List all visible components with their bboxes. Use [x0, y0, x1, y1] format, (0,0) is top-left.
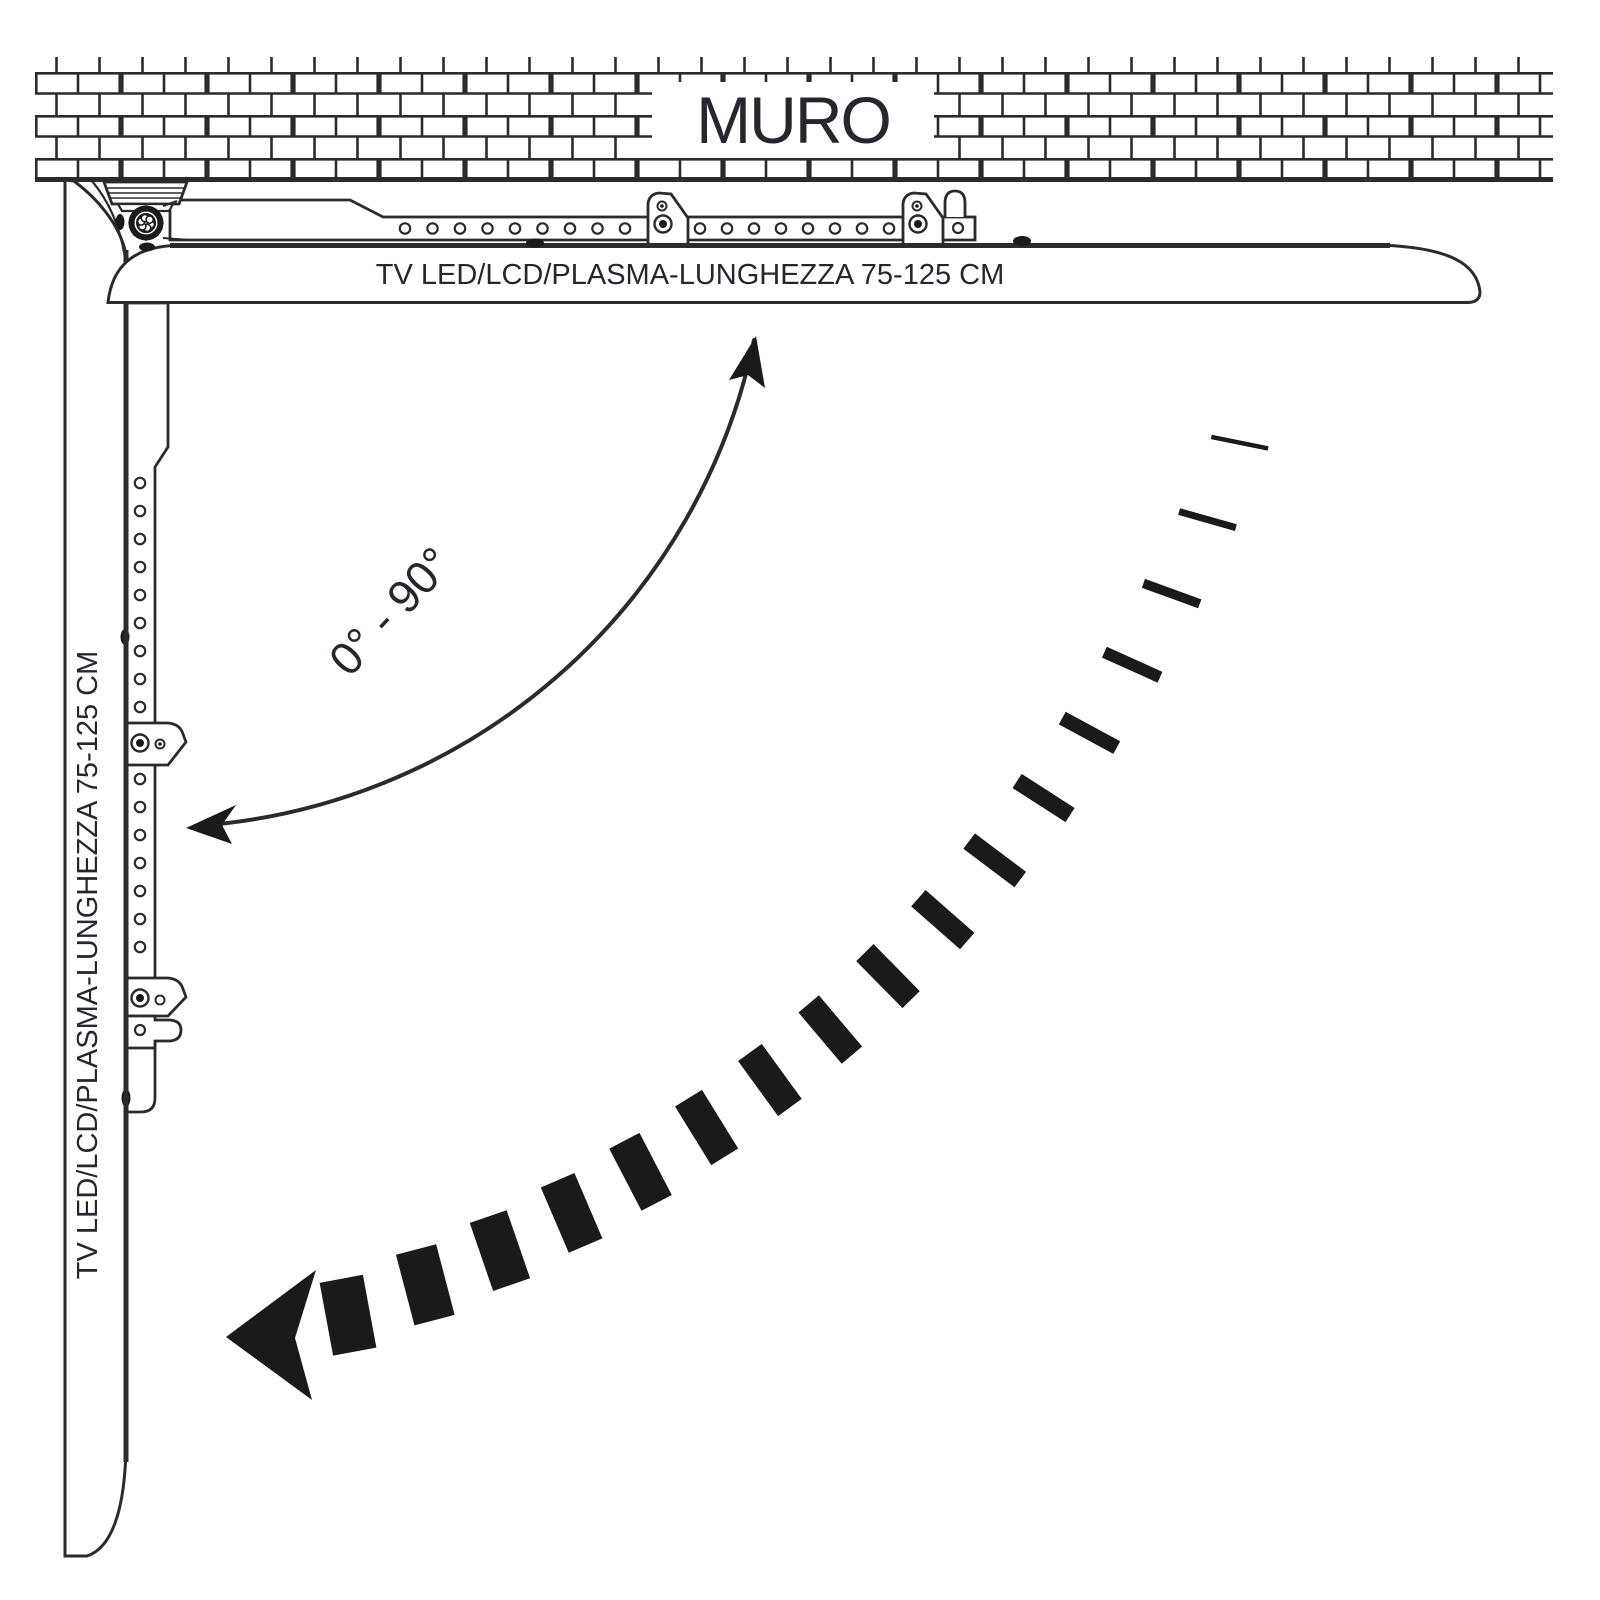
flower-petal — [146, 216, 153, 223]
tv-vertical-label: TV LED/LCD/PLASMA-LUNGHEZZA 75-125 CM — [72, 651, 104, 1280]
gear-tooth — [128, 220, 134, 226]
arm-hole — [400, 223, 410, 233]
arm-hole — [592, 223, 602, 233]
arm-hole — [135, 802, 145, 812]
arm-hole — [135, 858, 145, 868]
gear-tooth — [133, 230, 139, 236]
arm-hole — [857, 223, 867, 233]
arm-hole — [427, 223, 437, 233]
arm-hole — [565, 223, 575, 233]
arm-hole — [135, 618, 145, 628]
arm-hole — [830, 223, 840, 233]
arm-hole — [135, 534, 145, 544]
arm-hole — [135, 562, 145, 572]
gear-tooth — [153, 210, 159, 216]
arm-hole — [135, 914, 145, 924]
arm-hole — [620, 223, 630, 233]
gear-tooth — [133, 210, 139, 216]
tv-horizontal-label: TV LED/LCD/PLASMA-LUNGHEZZA 75-125 CM — [376, 259, 1005, 291]
arm-hole — [135, 774, 145, 784]
arm-hole — [884, 223, 894, 233]
edge-bump — [526, 239, 544, 248]
wall-label: MURO — [696, 83, 890, 157]
arm-hole — [135, 942, 145, 952]
gear-tooth — [157, 220, 163, 226]
pivot-knob-icon — [128, 205, 163, 240]
arm-hole — [510, 223, 520, 233]
arm-hole — [722, 223, 732, 233]
hinge-tab-bottom — [139, 243, 155, 252]
arm-hole — [482, 223, 492, 233]
diagram-page: MURO TV LED/LCD/PLASMA — [0, 0, 1600, 1600]
arm-hole — [455, 223, 465, 233]
arm-hole — [695, 223, 705, 233]
gear-tooth — [143, 205, 149, 211]
arm-hole — [135, 886, 145, 896]
tv-horizontal: TV LED/LCD/PLASMA-LUNGHEZZA 75-125 CM — [108, 236, 1480, 303]
arm-hole — [135, 702, 145, 712]
arm-hole — [776, 223, 786, 233]
arm-hole — [135, 646, 145, 656]
arm-hole — [135, 590, 145, 600]
brick-wall: MURO — [35, 57, 1553, 180]
tv-mount-rotation-diagram: MURO TV LED/LCD/PLASMA — [0, 0, 1600, 1600]
arm-hole — [135, 830, 145, 840]
arm-hole — [135, 674, 145, 684]
edge-bump — [1013, 236, 1031, 246]
arm-hole — [135, 478, 145, 488]
arm-hole — [749, 223, 759, 233]
hinge-tab-left — [116, 214, 125, 230]
arm-hole — [803, 223, 813, 233]
arm-hole — [537, 223, 547, 233]
gear-tooth — [143, 234, 149, 240]
arm-hole — [135, 506, 145, 516]
gear-tooth — [153, 230, 159, 236]
